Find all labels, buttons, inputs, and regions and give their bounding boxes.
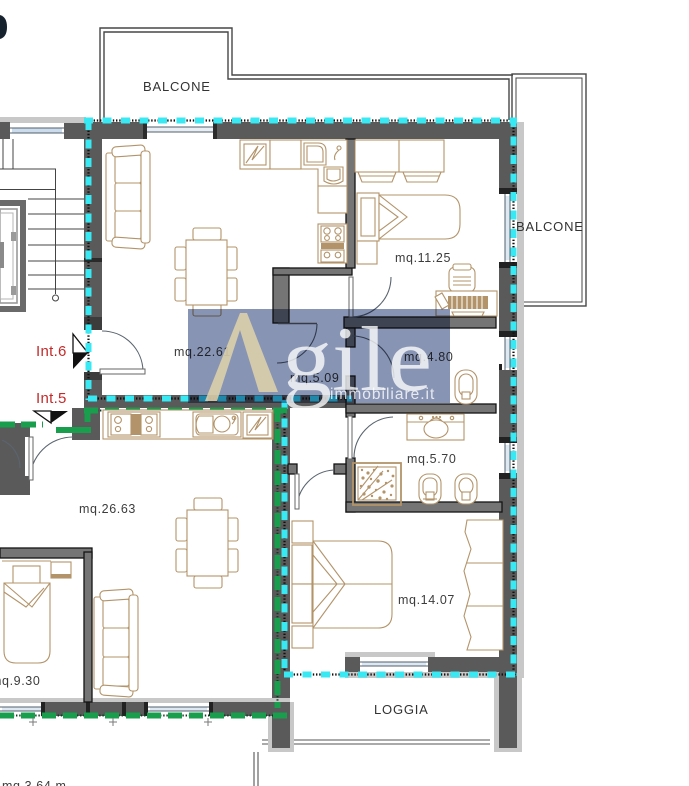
- svg-text:mq.3.64.m: mq.3.64.m: [2, 779, 66, 786]
- svg-text:mq.5.70: mq.5.70: [407, 452, 456, 466]
- svg-text:mq.14.07: mq.14.07: [398, 593, 455, 607]
- svg-text:mq.9.30: mq.9.30: [0, 674, 40, 688]
- svg-text:mq.26.63: mq.26.63: [79, 502, 136, 516]
- svg-text:LOGGIA: LOGGIA: [374, 702, 429, 717]
- svg-text:Int.6: Int.6: [36, 343, 67, 360]
- svg-text:BALCONE: BALCONE: [516, 219, 584, 234]
- svg-text:mq.11.25: mq.11.25: [395, 251, 451, 265]
- svg-text:BALCONE: BALCONE: [143, 79, 211, 94]
- svg-text:Int.5: Int.5: [36, 390, 67, 407]
- svg-text:immobiliare.it: immobiliare.it: [330, 386, 435, 403]
